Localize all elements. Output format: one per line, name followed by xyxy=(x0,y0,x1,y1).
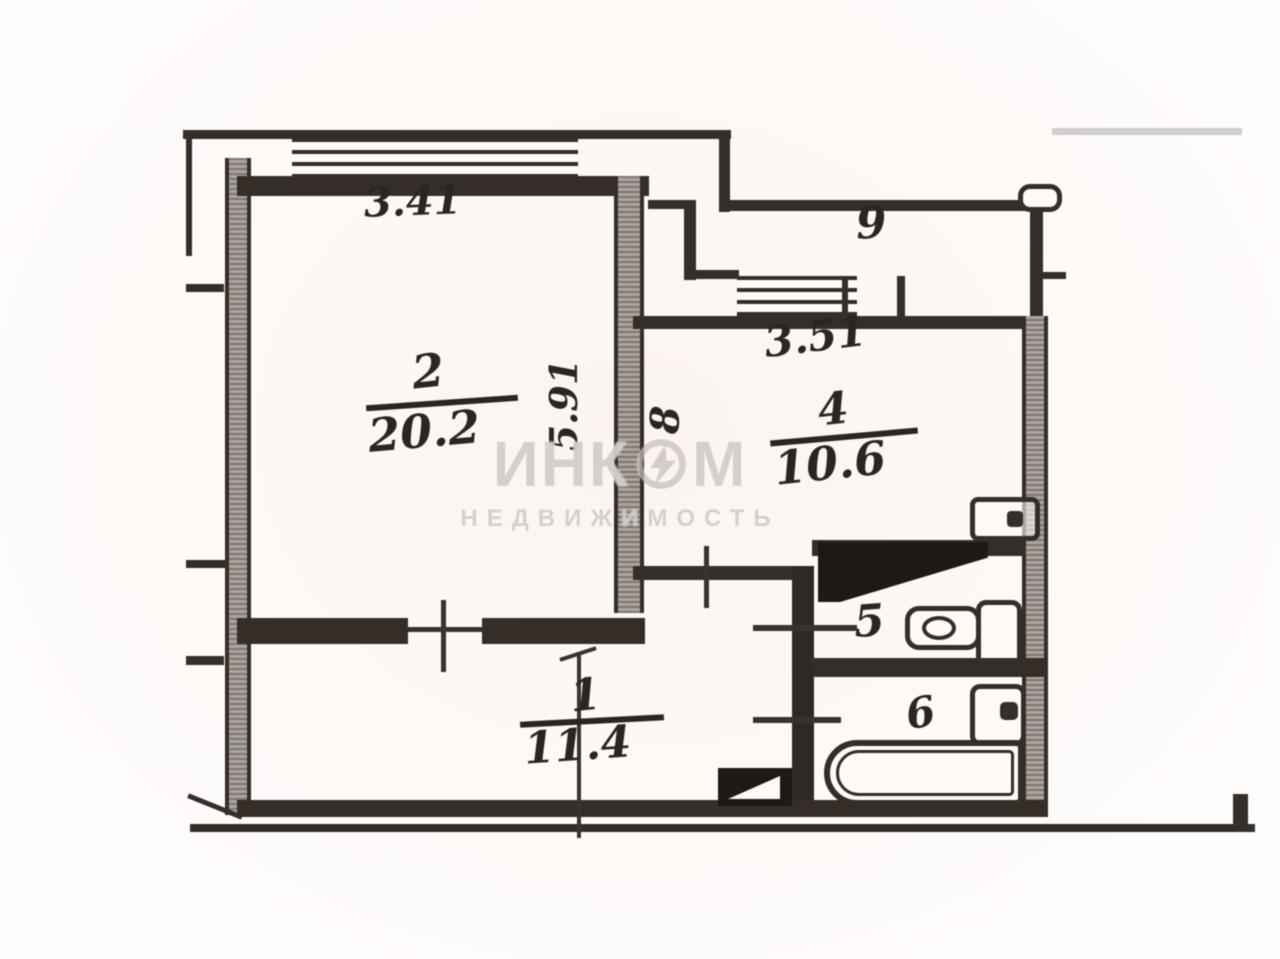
watermark-brand: ИНК М xyxy=(493,427,748,501)
sanitary-left-wall xyxy=(792,566,814,810)
toilet-door-line xyxy=(753,625,857,631)
entrance-door xyxy=(718,768,792,806)
balcony-right-wall xyxy=(1030,200,1043,318)
balcony-left-wall xyxy=(684,200,696,280)
bottom-outer-line xyxy=(190,824,1255,832)
left-wall-tick-low xyxy=(186,656,224,665)
bathtub-inner-line xyxy=(836,750,1014,796)
dimension-room2-width: 3.41 xyxy=(363,180,462,223)
room5-number: 5 xyxy=(853,599,887,645)
room2-number: 2 xyxy=(410,346,447,395)
watermark: ИНК М НЕДВИЖИМОСТЬ xyxy=(360,420,880,540)
hall-kitchen-wall xyxy=(633,566,813,580)
dimension-room9-width: 3.51 xyxy=(762,310,869,364)
left-wall-tick-mid xyxy=(186,560,226,568)
kitchen-door-tick xyxy=(704,546,709,608)
watermark-brand-left: ИНК xyxy=(493,427,630,501)
floor-plan: 3.41 2 20.2 5.91 8 9 3.51 4 10.6 5 6 1 1… xyxy=(0,0,1280,959)
floor-plan-page: 3.41 2 20.2 5.91 8 9 3.51 4 10.6 5 6 1 1… xyxy=(0,0,1280,959)
bottom-right-end-bar xyxy=(1233,794,1248,832)
watermark-brand-right: М xyxy=(692,427,747,501)
kitchen-sink xyxy=(970,497,1040,541)
faint-neighbor-line xyxy=(1052,128,1242,135)
left-exterior-wall xyxy=(225,158,251,815)
kitchen-sink-drain xyxy=(1007,511,1023,527)
room1-area: 11.4 xyxy=(523,720,633,771)
bottom-wall xyxy=(237,800,1048,817)
right-wall-tick xyxy=(1036,272,1066,279)
vent-shaft xyxy=(818,542,988,602)
toilet-bowl-inner xyxy=(922,616,956,640)
room2-bottom-wall-left xyxy=(237,618,408,644)
toilet-bath-wall xyxy=(812,658,1048,677)
center-wall xyxy=(614,176,644,613)
right-exterior-wall xyxy=(1022,316,1048,816)
room2-bottom-wall-right xyxy=(482,618,645,644)
outer-notch-vertical xyxy=(186,130,192,256)
outer-notch-tick xyxy=(186,284,224,292)
bath-door-line xyxy=(753,717,841,723)
balcony-door-jamb xyxy=(897,276,905,318)
room1-number: 1 xyxy=(568,673,603,720)
room2-door-tick xyxy=(441,600,446,672)
room6-number: 6 xyxy=(903,690,939,736)
balcony-sill-line xyxy=(684,270,739,279)
incom-logo-icon xyxy=(633,436,689,492)
balcony-corner-cap xyxy=(1018,184,1062,212)
watermark-subtitle: НЕДВИЖИМОСТЬ xyxy=(460,505,779,533)
room9-number: 9 xyxy=(855,201,888,247)
bath-sink-drain xyxy=(1000,702,1018,720)
room2-window xyxy=(292,138,578,176)
